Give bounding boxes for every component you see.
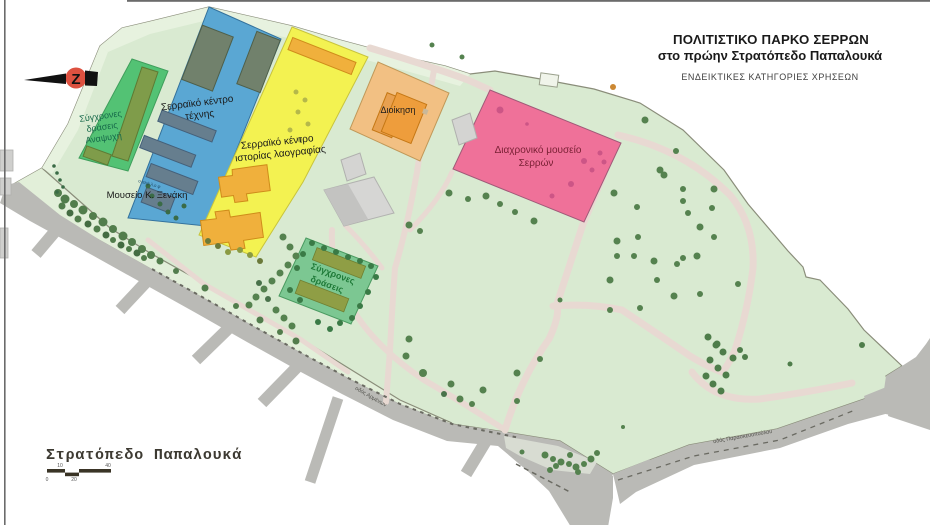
svg-text:Διαχρονικό μουσείο: Διαχρονικό μουσείο [495,144,582,156]
svg-text:Σερρών: Σερρών [519,157,554,169]
svg-text:στο πρώην Στρατόπεδο Παπαλουκά: στο πρώην Στρατόπεδο Παπαλουκά [658,48,882,63]
svg-text:ΕΝΔΕΙΚΤΙΚΕΣ ΚΑΤΗΓΟΡΙΕΣ ΧΡΗΣΕΩΝ: ΕΝΔΕΙΚΤΙΚΕΣ ΚΑΤΗΓΟΡΙΕΣ ΧΡΗΣΕΩΝ [681,72,858,82]
svg-text:20: 20 [71,477,77,483]
svg-text:Z: Z [71,71,80,88]
svg-text:40: 40 [105,463,111,469]
svg-text:ΠΟΛΙΤΙΣΤΙΚΟ ΠΑΡΚΟ ΣΕΡΡΩΝ: ΠΟΛΙΤΙΣΤΙΚΟ ΠΑΡΚΟ ΣΕΡΡΩΝ [673,32,869,47]
svg-text:Στρατόπεδο Παπαλουκά: Στρατόπεδο Παπαλουκά [46,447,242,464]
svg-text:0: 0 [46,477,49,483]
svg-text:Μουσείο Κ. Ξενάκη: Μουσείο Κ. Ξενάκη [107,190,188,201]
svg-text:10: 10 [57,463,63,469]
svg-text:Διοίκηση: Διοίκηση [380,105,415,115]
